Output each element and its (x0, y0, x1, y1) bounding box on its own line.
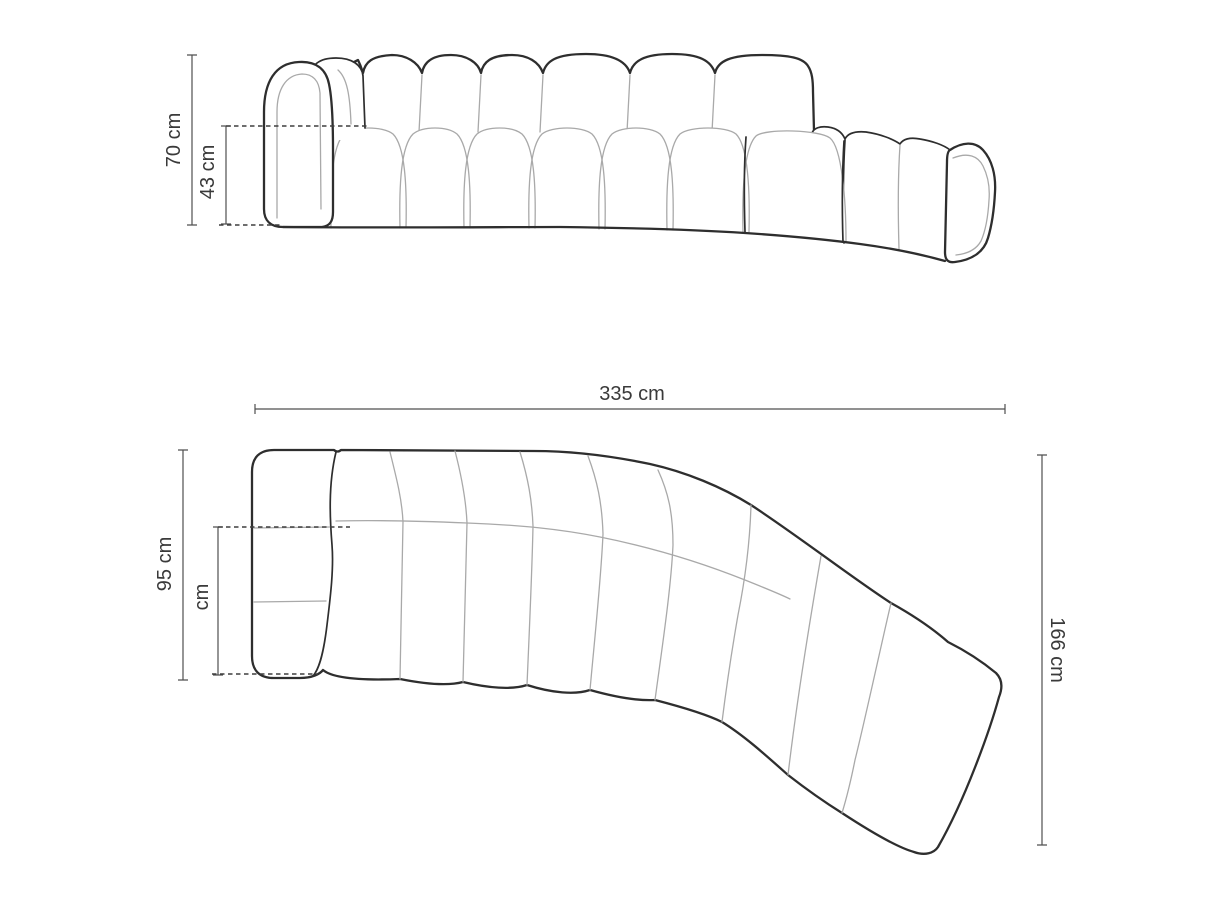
front-total-height-label: 70 cm (164, 113, 184, 167)
top-right-depth-label: 166 cm (1047, 617, 1067, 683)
front-elevation-sofa (264, 54, 995, 263)
top-total-width-label: 335 cm (599, 384, 665, 404)
front-seat-cushions (331, 128, 846, 242)
front-armrest (264, 62, 333, 227)
sofa-dimension-diagram: 70 cm 43 cm 335 cm 95 cm cm 166 cm (0, 0, 1214, 911)
top-seat-depth-label: cm (192, 584, 212, 611)
top-plan-sofa (252, 450, 1001, 854)
front-seat-height-label: 43 cm (198, 145, 218, 199)
top-left-depth-label: 95 cm (155, 537, 175, 591)
